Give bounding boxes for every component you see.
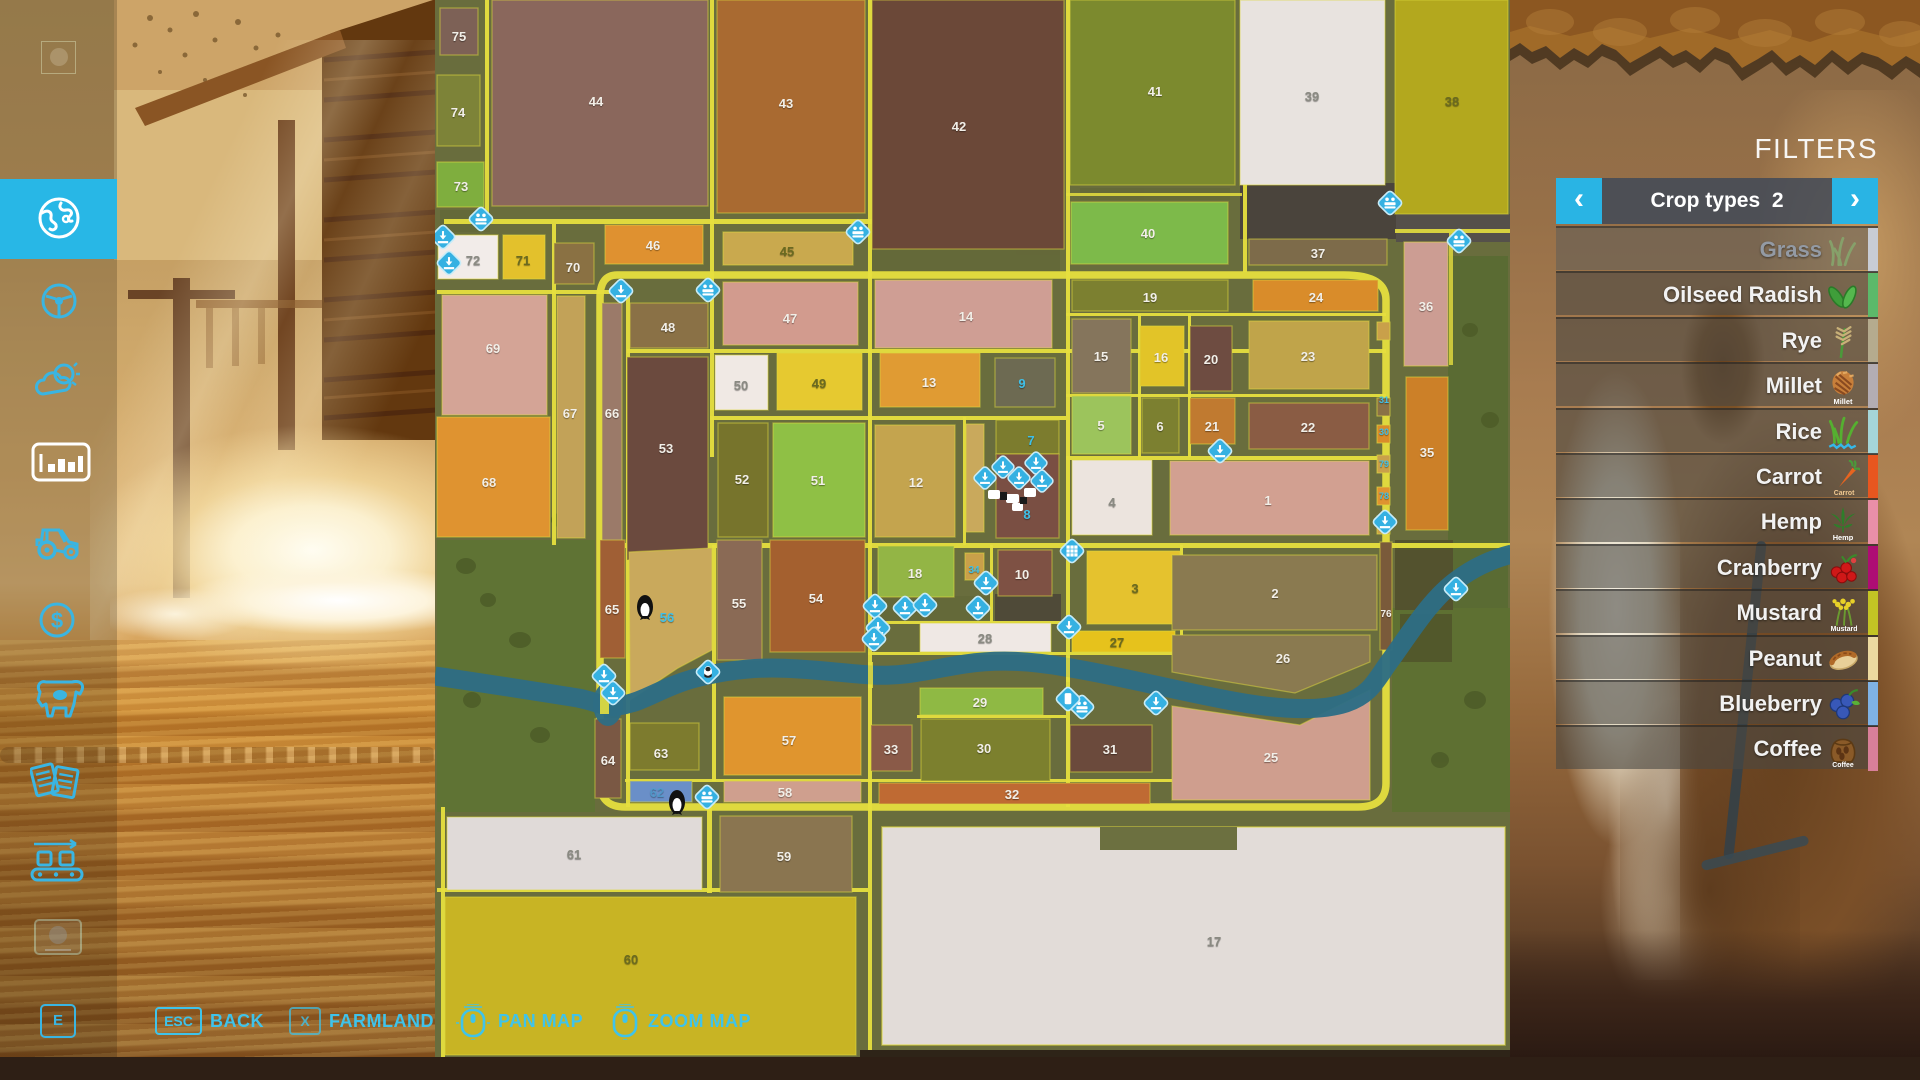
svg-text:57: 57 [782,733,796,748]
svg-text:12: 12 [909,475,923,490]
svg-text:25: 25 [1264,750,1278,765]
svg-text:49: 49 [812,376,826,391]
svg-text:Mustard: Mustard [1831,626,1858,632]
svg-text:18: 18 [908,566,922,581]
svg-text:66: 66 [605,406,619,421]
svg-text:51: 51 [811,473,825,488]
svg-text:10: 10 [1015,567,1029,582]
svg-text:24: 24 [1309,290,1324,305]
svg-text:20: 20 [1204,352,1218,367]
svg-text:59: 59 [777,849,791,864]
svg-text:70: 70 [566,260,580,275]
svg-text:6: 6 [1156,419,1163,434]
svg-text:34: 34 [968,565,980,576]
svg-text:53: 53 [659,441,673,456]
svg-text:36: 36 [1419,299,1433,314]
svg-text:Coffee: Coffee [1832,762,1854,768]
svg-text:38: 38 [1445,94,1459,109]
svg-text:31: 31 [1103,742,1117,757]
svg-text:41: 41 [1148,84,1162,99]
svg-text:79: 79 [1379,459,1389,469]
svg-text:5: 5 [1097,418,1104,433]
svg-text:55: 55 [732,596,746,611]
svg-text:33: 33 [884,742,898,757]
svg-text:78: 78 [1379,491,1389,501]
svg-text:47: 47 [783,311,797,326]
svg-text:8: 8 [1023,507,1030,522]
svg-text:46: 46 [646,238,660,253]
svg-text:16: 16 [1154,350,1168,365]
svg-text:40: 40 [1141,226,1155,241]
svg-text:76: 76 [1380,609,1392,620]
svg-text:68: 68 [482,475,496,490]
svg-text:44: 44 [589,94,604,109]
svg-text:13: 13 [922,375,936,390]
svg-text:75: 75 [452,29,466,44]
svg-text:74: 74 [451,105,466,120]
svg-text:21: 21 [1205,419,1219,434]
svg-text:3: 3 [1131,581,1138,596]
svg-text:45: 45 [780,244,794,259]
svg-text:72: 72 [466,253,480,268]
svg-text:29: 29 [973,695,987,710]
svg-text:1: 1 [1264,493,1271,508]
svg-text:9: 9 [1018,376,1025,391]
svg-text:30: 30 [977,741,991,756]
svg-text:67: 67 [563,406,577,421]
svg-text:58: 58 [778,785,792,800]
svg-text:28: 28 [978,631,992,646]
svg-text:54: 54 [809,591,824,606]
svg-text:73: 73 [454,179,468,194]
svg-text:56: 56 [660,610,674,625]
svg-text:32: 32 [1005,787,1019,802]
svg-text:69: 69 [486,341,500,356]
svg-text:52: 52 [735,472,749,487]
svg-text:50: 50 [734,378,748,393]
svg-text:15: 15 [1094,349,1108,364]
svg-text:42: 42 [952,119,966,134]
svg-text:Carrot: Carrot [1834,490,1855,496]
svg-text:39: 39 [1305,89,1319,104]
svg-text:43: 43 [779,96,793,111]
svg-text:63: 63 [654,746,668,761]
svg-text:Millet: Millet [1834,397,1853,405]
svg-text:2: 2 [1271,586,1278,601]
svg-text:7: 7 [1027,433,1034,448]
svg-text:27: 27 [1110,635,1124,650]
svg-text:60: 60 [624,952,638,967]
svg-text:$: $ [51,608,63,633]
svg-text:64: 64 [601,753,616,768]
svg-text:65: 65 [605,602,619,617]
svg-text:48: 48 [661,320,675,335]
svg-text:35: 35 [1420,445,1434,460]
svg-text:30: 30 [1379,427,1389,437]
svg-text:Hemp: Hemp [1833,533,1854,541]
svg-text:26: 26 [1276,651,1290,666]
svg-text:31: 31 [1379,395,1389,405]
svg-text:22: 22 [1301,420,1315,435]
svg-text:19: 19 [1143,290,1157,305]
svg-text:23: 23 [1301,349,1315,364]
svg-text:71: 71 [516,253,530,268]
svg-text:14: 14 [959,309,974,324]
svg-text:4: 4 [1108,495,1116,510]
svg-text:62: 62 [650,785,664,800]
svg-text:37: 37 [1311,246,1325,261]
svg-text:61: 61 [567,847,581,862]
svg-text:17: 17 [1207,934,1221,949]
